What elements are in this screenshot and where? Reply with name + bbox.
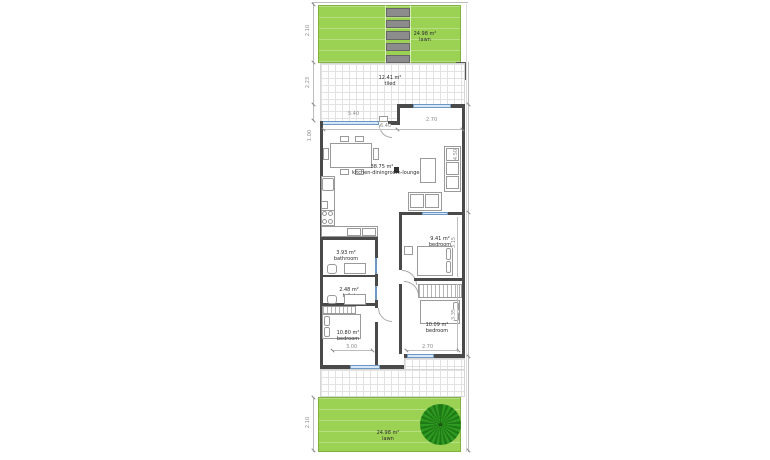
wall-front-step bbox=[397, 104, 400, 125]
dim-chain-right bbox=[468, 62, 469, 452]
bottom-terrace bbox=[320, 369, 465, 397]
kitchen-double-sink bbox=[347, 228, 361, 236]
living-name: kitchen-diningroom-lounge bbox=[352, 170, 412, 176]
top-terrace-label: 12.41 m² tiled bbox=[360, 75, 420, 87]
site-boundary-top bbox=[312, 2, 468, 3]
paver bbox=[386, 8, 410, 17]
dim-front-left-width: 6.40 bbox=[380, 124, 391, 129]
dim-tick bbox=[311, 395, 315, 399]
sofa-cushion bbox=[446, 176, 459, 189]
kitchen-shelf bbox=[321, 201, 328, 209]
dim-tick bbox=[395, 127, 399, 131]
dim-bottom-lawn-depth: 2.10 bbox=[306, 417, 311, 428]
bathroom-label: 3.93 m² bathroom bbox=[316, 250, 376, 262]
dim-tick bbox=[466, 354, 470, 358]
dim-tick bbox=[311, 448, 315, 452]
bottom-lawn-name: lawn bbox=[358, 436, 418, 442]
dim-living-left: 1.00 bbox=[308, 130, 313, 141]
dim-tick bbox=[311, 118, 315, 122]
hob-burner bbox=[328, 211, 333, 216]
dim-top-lawn-depth: 2.10 bbox=[306, 25, 311, 36]
dim-tick bbox=[311, 60, 315, 64]
dim-front-right-width: 2.70 bbox=[426, 118, 437, 123]
washbasin bbox=[344, 263, 366, 274]
top-lawn-label: 24.98 m² lawn bbox=[395, 31, 455, 43]
dim-line-front bbox=[323, 129, 462, 130]
sofa-cushion bbox=[425, 194, 439, 208]
dim-line-bedroom-br bbox=[457, 284, 458, 352]
paver bbox=[386, 20, 410, 28]
dim-front-window-width: 5.40 bbox=[348, 112, 359, 117]
site-boundary-right bbox=[466, 4, 467, 452]
wardrobe bbox=[418, 284, 462, 298]
dim-tick bbox=[466, 102, 470, 106]
hob-burner bbox=[322, 219, 327, 224]
wc-toilet bbox=[327, 264, 337, 274]
tree-symbol bbox=[420, 404, 461, 445]
sofa-cushion bbox=[410, 194, 424, 208]
chair bbox=[355, 136, 364, 142]
pillow bbox=[324, 316, 330, 326]
kitchen-double-sink bbox=[362, 228, 376, 236]
dim-line-bedroom-mr bbox=[457, 217, 458, 277]
top-lawn-name: lawn bbox=[395, 37, 455, 43]
bedroom-br-label: 10.09 m² bedroom bbox=[407, 322, 467, 334]
window-bedroom-mr bbox=[422, 212, 448, 215]
chair bbox=[340, 169, 349, 175]
window-front-right bbox=[413, 104, 451, 108]
paver bbox=[386, 55, 410, 63]
floor-plan-canvas: 24.98 m² lawn 12.41 m² tiled bbox=[0, 0, 770, 460]
bedroom-bl-door-arc bbox=[378, 308, 392, 322]
hob-burner bbox=[328, 219, 333, 224]
washbasin bbox=[327, 295, 337, 304]
bottom-lawn-label: 24.98 m² lawn bbox=[358, 430, 418, 442]
bedroom-bl-name: bedroom bbox=[318, 336, 378, 342]
chair bbox=[373, 148, 379, 160]
wall-kitchen bbox=[322, 237, 378, 240]
wardrobe bbox=[322, 306, 356, 314]
wall-bath-divider bbox=[322, 275, 378, 277]
top-terrace-name: tiled bbox=[360, 81, 420, 87]
paver bbox=[386, 43, 410, 51]
dim-tick bbox=[466, 210, 470, 214]
pillow bbox=[446, 248, 451, 260]
living-label: 38.75 m² kitchen-diningroom-lounge bbox=[352, 164, 412, 176]
window-front-left bbox=[322, 121, 379, 125]
dim-terrace-depth: 2.23 bbox=[306, 77, 311, 88]
nightstand bbox=[404, 246, 413, 255]
dim-tick bbox=[330, 348, 334, 352]
dim-bedroom-mr-depth: 3.15 bbox=[452, 237, 457, 248]
entrance-door-leaf bbox=[379, 116, 388, 122]
dim-tick bbox=[311, 2, 315, 6]
bedroom-bl-label: 10.80 m² bedroom bbox=[318, 330, 378, 342]
bedroom-br-name: bedroom bbox=[407, 328, 467, 334]
wall-right bbox=[462, 104, 465, 358]
dim-living-right-depth: 4.50 bbox=[454, 149, 459, 160]
dim-tick bbox=[370, 348, 374, 352]
bathroom-name: bathroom bbox=[316, 256, 376, 262]
sofa-cushion bbox=[446, 162, 459, 175]
shower bbox=[344, 294, 366, 305]
chair bbox=[340, 136, 349, 142]
dim-bedroom-br-depth: 3.35 bbox=[452, 309, 457, 320]
dim-tick bbox=[466, 448, 470, 452]
hob-burner bbox=[322, 211, 327, 216]
coffee-table bbox=[420, 158, 436, 183]
chair bbox=[323, 148, 329, 160]
dim-tick bbox=[404, 348, 408, 352]
dim-bedroom-bl-width: 3.00 bbox=[346, 345, 357, 350]
kitchen-sink bbox=[322, 178, 334, 191]
dim-chain-left-bottom bbox=[313, 397, 314, 452]
dim-tick bbox=[311, 102, 315, 106]
dim-line-bedroom-br-w bbox=[406, 350, 458, 351]
dim-bedroom-br-width: 2.70 bbox=[422, 345, 433, 350]
dim-line-bedroom-bl bbox=[332, 350, 372, 351]
pillow bbox=[446, 261, 451, 273]
